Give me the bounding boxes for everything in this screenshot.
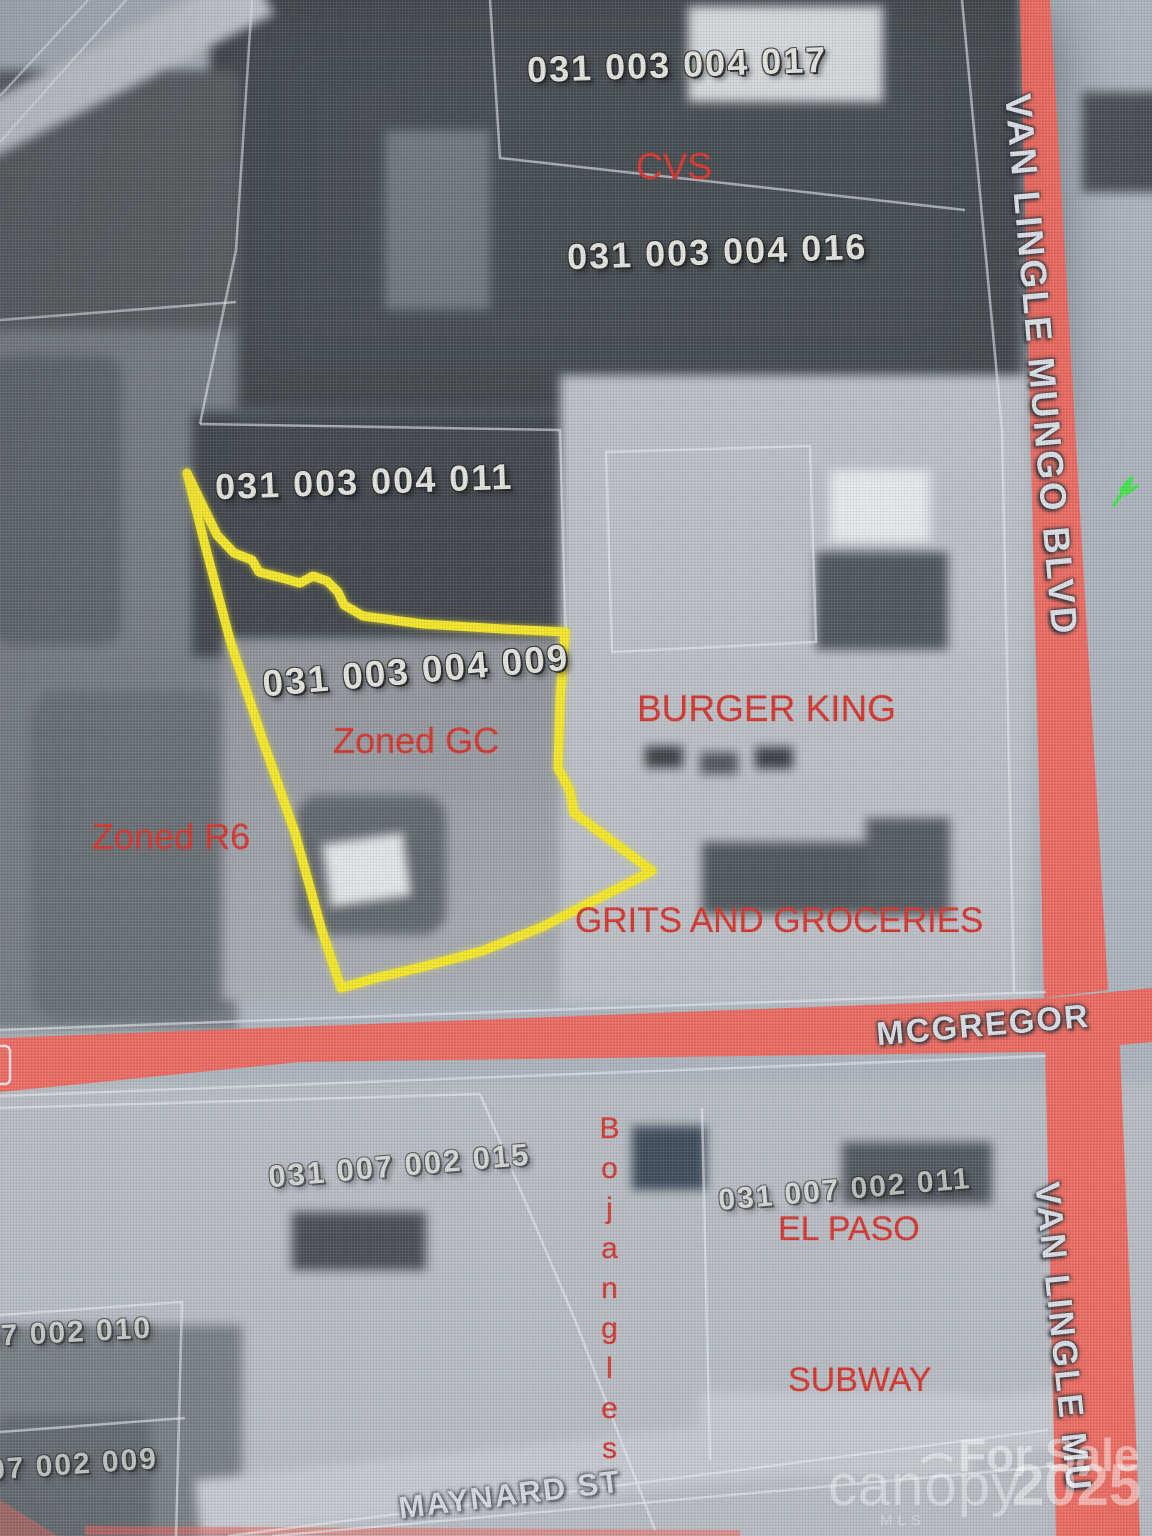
bojangles-roof [632, 1126, 706, 1190]
clearing-patch [385, 130, 490, 310]
woods-blob-bottomleft [0, 1415, 152, 1536]
grits-building-wing [866, 818, 950, 916]
aerial-imagery-layer [0, 0, 1152, 1536]
burger-king-roof [816, 552, 948, 650]
woods-blob-left-a [0, 355, 122, 645]
parked-car [755, 747, 793, 769]
light-canopy-roof [830, 470, 930, 542]
mobile-home-roof [322, 833, 412, 908]
parcel-011-trees [192, 412, 567, 657]
parcel-map-photo: 031 003 004 017 031 003 004 016 031 003 … [0, 0, 1152, 1536]
cvs-building-roof [688, 6, 883, 102]
woods-patch-top [210, 0, 1020, 410]
south-roof-2 [842, 1142, 992, 1204]
parked-car [700, 752, 738, 774]
south-roof-1 [292, 1212, 426, 1270]
dark-roof-topright [1082, 92, 1152, 192]
parked-car [645, 746, 683, 768]
woods-blob-left-b [30, 690, 230, 1020]
